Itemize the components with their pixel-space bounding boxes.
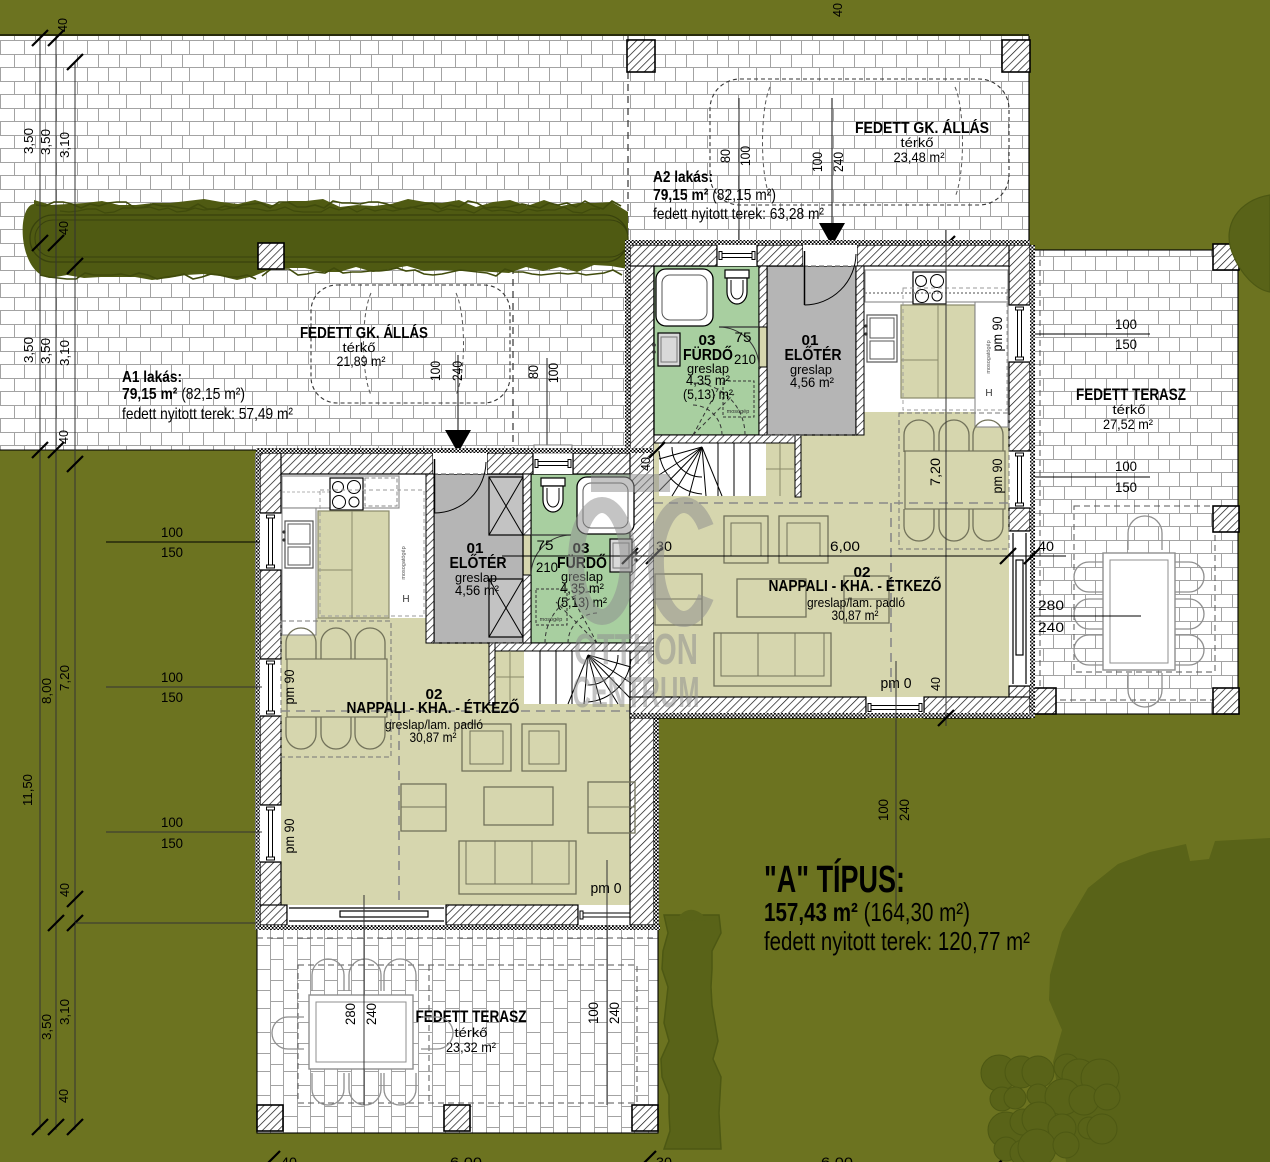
svg-text:23,32 m²: 23,32 m²: [446, 1039, 496, 1055]
svg-text:CENTRUM: CENTRUM: [573, 668, 700, 717]
svg-text:8,00: 8,00: [39, 678, 54, 704]
svg-text:40: 40: [638, 457, 653, 471]
svg-text:6,00: 6,00: [821, 1154, 853, 1162]
svg-text:150: 150: [161, 544, 183, 560]
svg-text:mosogatógép: mosogatógép: [401, 546, 407, 579]
svg-text:40: 40: [1038, 538, 1054, 554]
svg-text:23,48 m²: 23,48 m²: [894, 149, 945, 165]
svg-text:3,50: 3,50: [21, 128, 36, 154]
svg-text:NAPPALI - KHA. - ÉTKEZŐ: NAPPALI - KHA. - ÉTKEZŐ: [769, 576, 942, 595]
svg-text:40: 40: [56, 430, 71, 444]
svg-text:pm 90: pm 90: [281, 818, 297, 853]
svg-text:OTTHON: OTTHON: [574, 625, 698, 674]
svg-text:A2 lakás:: A2 lakás:: [653, 169, 713, 186]
svg-text:150: 150: [161, 689, 183, 705]
svg-text:térkő: térkő: [1113, 402, 1146, 417]
svg-text:75: 75: [735, 329, 752, 345]
svg-text:79,15 m² (82,15 m²): 79,15 m² (82,15 m²): [122, 386, 245, 403]
svg-text:3,10: 3,10: [57, 999, 72, 1025]
svg-text:fedett nyitott terek: 120,77 m: fedett nyitott terek: 120,77 m²: [764, 926, 1030, 956]
svg-text:3,50: 3,50: [21, 337, 36, 363]
svg-text:100: 100: [161, 524, 183, 540]
svg-text:150: 150: [1115, 479, 1137, 495]
svg-text:3,50: 3,50: [39, 1014, 54, 1040]
svg-text:210: 210: [536, 559, 558, 575]
svg-text:100: 100: [585, 1002, 601, 1024]
svg-text:4,56 m²: 4,56 m²: [790, 374, 834, 390]
svg-text:75: 75: [537, 537, 554, 553]
svg-text:11,50: 11,50: [20, 774, 35, 806]
svg-text:6,00: 6,00: [830, 538, 860, 554]
svg-text:pm 90: pm 90: [989, 316, 1005, 351]
svg-text:pm 90: pm 90: [281, 669, 297, 704]
svg-text:H: H: [402, 594, 409, 605]
svg-text:3,10: 3,10: [57, 132, 72, 158]
svg-text:mosógép: mosógép: [540, 617, 563, 623]
svg-text:80: 80: [717, 149, 733, 163]
svg-text:7,20: 7,20: [57, 665, 72, 691]
svg-text:280: 280: [1038, 597, 1064, 613]
svg-text:40: 40: [928, 677, 943, 691]
svg-text:240: 240: [449, 361, 465, 381]
svg-text:100: 100: [161, 669, 183, 685]
svg-text:79,15 m² (82,15 m²): 79,15 m² (82,15 m²): [653, 187, 776, 204]
svg-text:40: 40: [55, 18, 70, 32]
svg-text:100: 100: [427, 361, 443, 381]
svg-text:4,56 m²: 4,56 m²: [455, 582, 499, 598]
svg-text:fedett nyitott terek: 57,49 m²: fedett nyitott terek: 57,49 m²: [122, 406, 294, 423]
svg-text:térkő: térkő: [455, 1025, 488, 1040]
svg-text:100: 100: [161, 814, 183, 830]
svg-text:30,87 m²: 30,87 m²: [832, 607, 879, 623]
svg-text:"A" TÍPUS:: "A" TÍPUS:: [764, 857, 905, 901]
svg-text:210: 210: [734, 351, 756, 367]
svg-text:pm 0: pm 0: [591, 880, 622, 897]
svg-text:40: 40: [56, 221, 71, 235]
svg-text:40: 40: [830, 3, 845, 17]
svg-text:3,50: 3,50: [38, 338, 53, 364]
svg-text:240: 240: [896, 799, 912, 821]
svg-text:3,10: 3,10: [57, 340, 72, 366]
svg-text:(5,13) m²: (5,13) m²: [683, 386, 733, 402]
svg-text:280: 280: [342, 1003, 358, 1025]
svg-text:100: 100: [545, 363, 561, 383]
svg-text:7,20: 7,20: [927, 458, 943, 486]
svg-text:NAPPALI - KHA. - ÉTKEZŐ: NAPPALI - KHA. - ÉTKEZŐ: [347, 698, 520, 717]
svg-text:240: 240: [363, 1003, 379, 1025]
svg-text:térkő: térkő: [901, 135, 934, 150]
svg-text:6,00: 6,00: [450, 1154, 482, 1162]
svg-text:40: 40: [56, 1089, 71, 1103]
svg-text:21,89 m²: 21,89 m²: [337, 353, 386, 369]
svg-text:100: 100: [1115, 458, 1137, 474]
svg-text:157,43 m² (164,30 m²): 157,43 m² (164,30 m²): [764, 897, 970, 927]
svg-text:3,50: 3,50: [38, 129, 53, 155]
svg-text:mosógép: mosógép: [727, 409, 750, 415]
svg-text:150: 150: [161, 835, 183, 851]
svg-text:240: 240: [830, 152, 846, 172]
svg-text:100: 100: [809, 152, 825, 172]
svg-text:H: H: [985, 388, 992, 399]
svg-text:150: 150: [1115, 336, 1137, 352]
svg-text:A1 lakás:: A1 lakás:: [122, 369, 182, 386]
svg-text:40: 40: [281, 1154, 297, 1162]
svg-text:27,52 m²: 27,52 m²: [1103, 416, 1153, 432]
svg-text:240: 240: [606, 1002, 622, 1024]
svg-text:40: 40: [57, 883, 72, 897]
svg-text:240: 240: [1038, 619, 1064, 635]
svg-text:80: 80: [525, 365, 541, 379]
svg-text:30: 30: [656, 1154, 672, 1162]
svg-text:100: 100: [737, 146, 753, 166]
svg-text:30,87 m²: 30,87 m²: [410, 729, 457, 745]
svg-text:pm 90: pm 90: [989, 458, 1005, 493]
svg-text:100: 100: [875, 799, 891, 821]
svg-text:100: 100: [1115, 316, 1137, 332]
